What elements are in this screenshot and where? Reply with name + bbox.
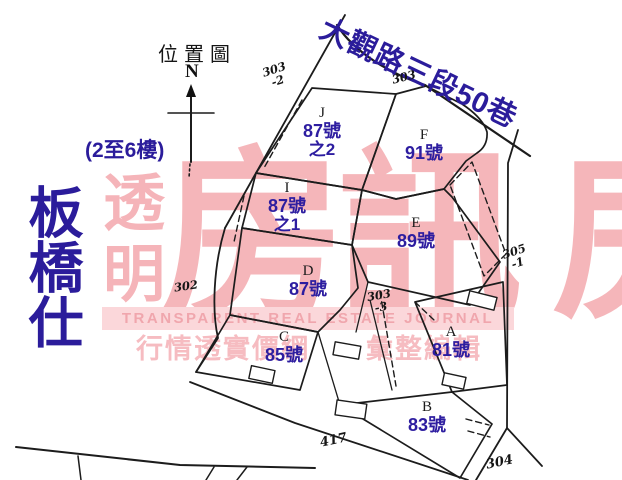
parcel-letter: F bbox=[376, 128, 472, 144]
road-line-302 bbox=[196, 228, 225, 372]
parcel-label-B: B 83號 bbox=[379, 400, 475, 435]
parcel-label-D: D 87號 bbox=[260, 264, 356, 299]
parcel-number-suffix: 之2 bbox=[274, 141, 370, 159]
compass-arrowhead bbox=[186, 84, 196, 97]
parcel-letter: B bbox=[379, 400, 475, 416]
parcel-number-suffix: 之1 bbox=[239, 216, 335, 234]
entrance-rect bbox=[442, 373, 466, 389]
parcel-number: 87號 bbox=[239, 197, 335, 216]
parcel-number: 83號 bbox=[379, 416, 475, 435]
floor-note: (2至6樓) bbox=[85, 134, 164, 164]
road-line-bottom bbox=[16, 447, 315, 468]
parcel-number: 87號 bbox=[274, 122, 370, 141]
parcel-label-F: F 91號 bbox=[376, 128, 472, 163]
parcel-label-E: E 89號 bbox=[368, 216, 464, 251]
road-line-305-1 bbox=[507, 130, 518, 428]
area-label: 板橋仕 bbox=[20, 184, 80, 349]
entrance-rect bbox=[467, 291, 497, 310]
parcel-letter: J bbox=[274, 106, 370, 122]
lot-number-303-3: 303 -3 bbox=[366, 288, 394, 315]
entrance-rect bbox=[249, 366, 275, 384]
road-ticks bbox=[78, 456, 247, 480]
parcel-label-A: A 81號 bbox=[403, 325, 499, 360]
cadastral-map-drawing bbox=[0, 0, 622, 480]
parcel-letter: E bbox=[368, 216, 464, 232]
compass-arrow bbox=[168, 84, 214, 178]
parcel-number: 85號 bbox=[236, 346, 332, 365]
parcel-label-I: I 87號 之1 bbox=[239, 181, 335, 233]
parcel-letter: C bbox=[236, 330, 332, 346]
location-map-page: 透明 房訊 房訊 TRANSPARENT REAL ESTATE JOURNAL… bbox=[0, 0, 622, 480]
entrance-rect bbox=[333, 342, 361, 359]
parcel-number: 89號 bbox=[368, 232, 464, 251]
parcel-letter: A bbox=[403, 325, 499, 341]
entrance-rect bbox=[335, 400, 367, 419]
parcel-letter: I bbox=[239, 181, 335, 197]
parcel-number: 87號 bbox=[260, 280, 356, 299]
parcel-label-J: J 87號 之2 bbox=[274, 106, 370, 158]
parcel-label-C: C 85號 bbox=[236, 330, 332, 365]
parcel-letter: D bbox=[260, 264, 356, 280]
parcel-number: 91號 bbox=[376, 144, 472, 163]
compass-north-label: N bbox=[185, 61, 199, 83]
parcel-number: 81號 bbox=[403, 341, 499, 360]
compass-dots bbox=[189, 164, 190, 178]
